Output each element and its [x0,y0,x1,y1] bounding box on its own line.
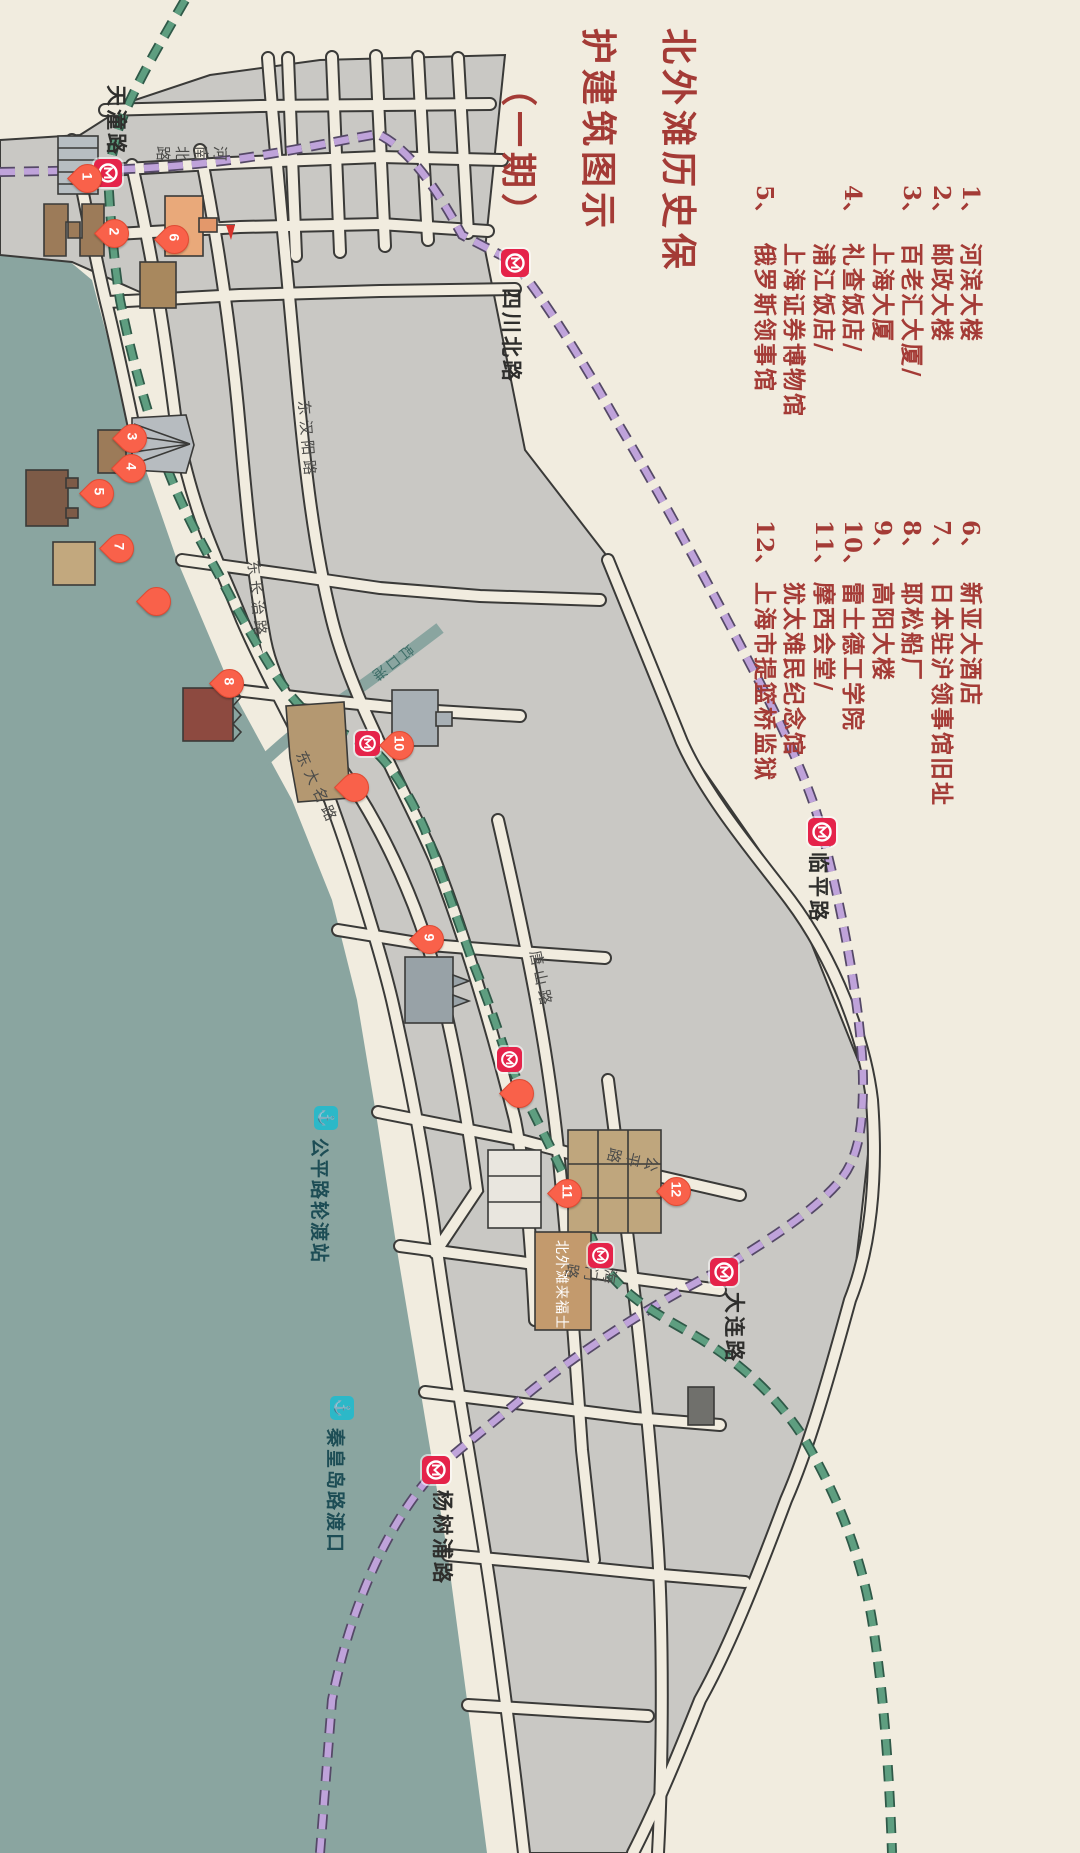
ferry-icon-gongping[interactable]: ⚓ [314,1106,338,1130]
ferry-glyph: ⚓ [333,1399,351,1418]
legend-row: 5、俄罗斯领事馆 [752,185,782,418]
legend-secondary: 6、新亚大酒店 7、日本驻沪领事馆旧址 8、耶松船厂 9、高阳大楼 10、雷士德… [752,520,988,807]
legend-row: 6、新亚大酒店 [959,520,989,807]
pin-number: 12 [665,1177,689,1201]
metro-logo-dalianlu[interactable] [710,1258,738,1286]
ferry-label-qinhuangdao[interactable]: 秦皇岛路渡口 [323,1428,350,1554]
pin-number [343,773,367,797]
pin-number: 6 [163,225,187,249]
road-label-henan: 河南北路 [152,142,228,163]
station-label-dalianlu[interactable]: 大连路 [720,1292,750,1364]
station-label-yangshupulu[interactable]: 杨树浦路 [428,1490,458,1586]
legend-row: 浦江饭店/ [811,185,841,418]
map-title-line1: 北外滩历史保 [638,28,718,274]
map-world: 北外滩历史保 护建筑图示 （一期） 1、河滨大楼 2、邮政大楼 3、百老汇大厦/… [0,0,1080,1853]
station-label-sichuanbeilu[interactable]: 四川北路 [497,288,527,384]
metro-logo-yangshupulu[interactable] [422,1456,450,1484]
pin-number: 8 [218,669,242,693]
metro-logo-midline-1[interactable] [355,731,380,756]
metro-logo-sichuanbeilu[interactable] [501,249,529,277]
ferry-glyph: ⚓ [317,1109,335,1128]
legend-row: 上海证券博物馆 [782,185,812,418]
pin-number: 9 [418,925,442,949]
metro-logo-linpinglu[interactable] [808,818,836,846]
pin-number [508,1079,532,1103]
metro-logo-midline-3[interactable] [588,1243,613,1268]
legend-row: 2、邮政大楼 [929,185,959,418]
station-label-tiantonglu[interactable]: 天潼路 [102,85,132,157]
legend-primary: 1、河滨大楼 2、邮政大楼 3、百老汇大厦/ 上海大厦 4、礼查饭店/ 浦江饭店… [752,185,988,418]
legend-row: 8、耶松船厂 [900,520,930,807]
ferry-label-gongping[interactable]: 公平路轮渡站 [307,1138,334,1264]
metro-logo-midline-2[interactable] [497,1047,522,1072]
legend-row: 11、摩西会堂/ [811,520,841,807]
building-ohel-moshe [488,1150,541,1228]
pin-number: 7 [108,534,132,558]
building-new-asia-hotel [140,262,176,308]
map-title: 北外滩历史保 护建筑图示 （一期） [478,28,718,274]
legend-row: 7、日本驻沪领事馆旧址 [929,520,959,807]
legend-row: 4、礼查饭店/ [841,185,871,418]
ferry-icon-qinhuangdao[interactable]: ⚓ [330,1396,354,1420]
pin-number: 11 [556,1179,580,1203]
station-label-linpinglu[interactable]: 临平路 [804,852,834,924]
legend-row: 上海大厦 [870,185,900,418]
building-small-block [688,1387,714,1425]
pin-number: 4 [120,454,144,478]
map-title-line3: （一期） [478,28,558,274]
pin-number: 2 [103,219,127,243]
pin-number: 5 [88,479,112,503]
pin-number: 1 [76,164,100,188]
building-japanese-consulate [53,542,95,585]
building-label-raffles: 北外滩来福士 [552,1240,572,1330]
map-canvas: 北外滩历史保 护建筑图示 （一期） 1、河滨大楼 2、邮政大楼 3、百老汇大厦/… [0,0,1080,1853]
legend-row: 3、百老汇大厦/ [900,185,930,418]
pin-number: 10 [388,731,412,755]
legend-row: 9、高阳大楼 [870,520,900,807]
legend-row: 10、雷士德工学院 [841,520,871,807]
map-title-line2: 护建筑图示 [558,28,638,274]
legend-row: 1、河滨大楼 [959,185,989,418]
pin-number [145,587,169,611]
pin-number: 3 [121,424,145,448]
legend-row: 犹太难民纪念馆 [782,520,812,807]
legend-row: 12、上海市提篮桥监狱 [752,520,782,807]
